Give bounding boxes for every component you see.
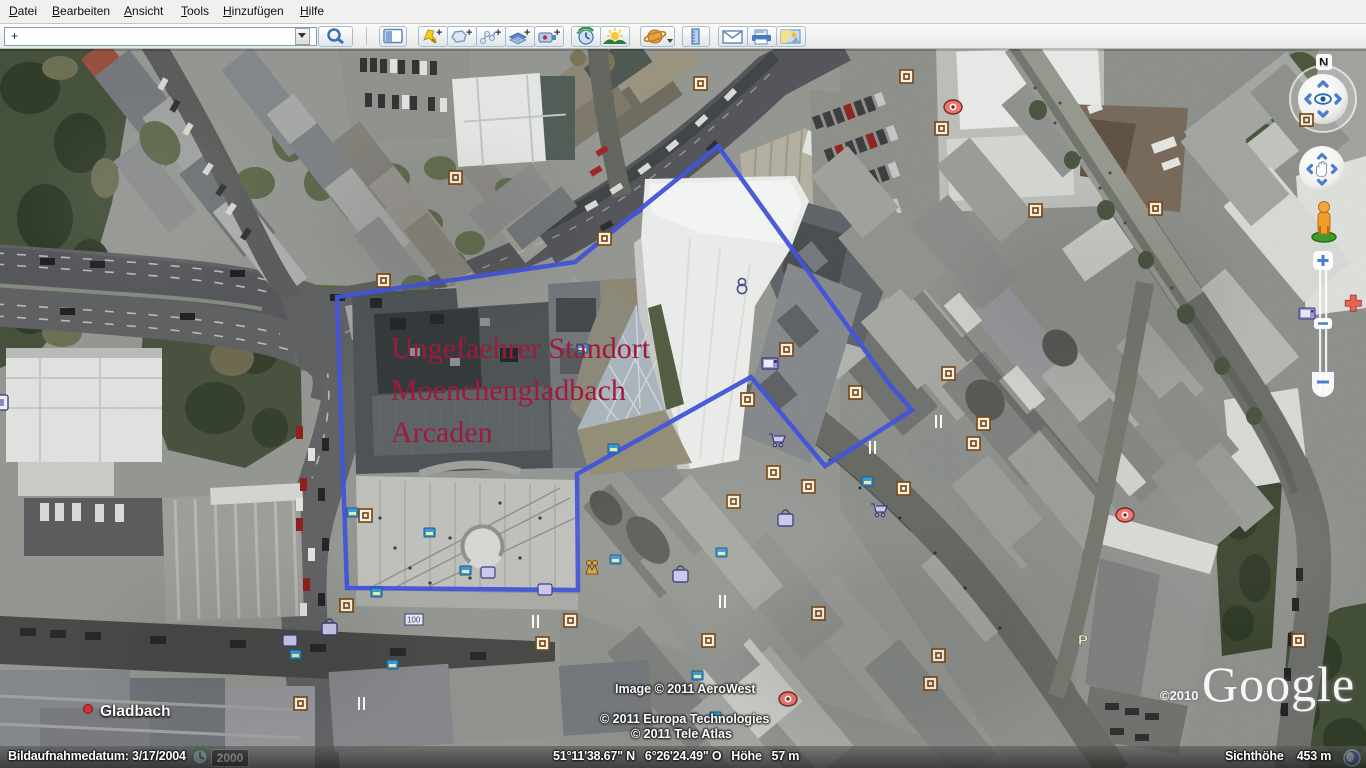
svg-text:Gladbach: Gladbach	[100, 703, 171, 720]
svg-text:+: +	[466, 27, 472, 39]
svg-text:+: +	[495, 27, 501, 39]
svg-text:+: +	[436, 27, 442, 39]
svg-text:+: +	[524, 27, 530, 39]
svg-text:+: +	[554, 27, 560, 39]
svg-text:P: P	[1078, 632, 1088, 649]
svg-text:100: 100	[407, 616, 421, 625]
